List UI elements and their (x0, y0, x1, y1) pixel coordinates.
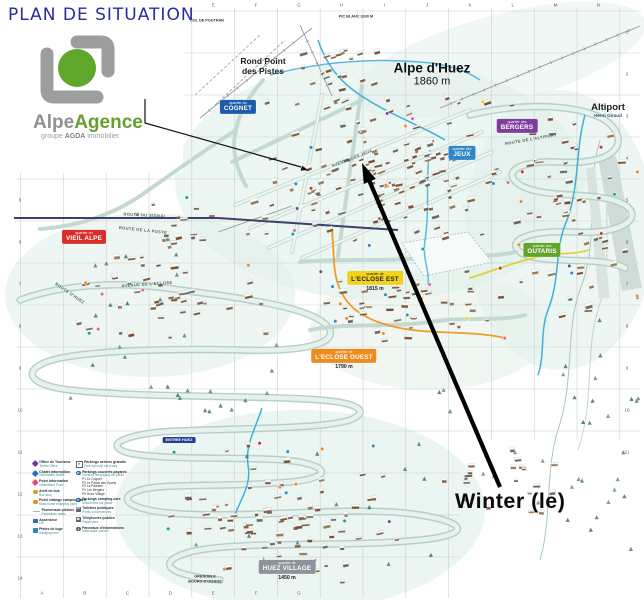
logo-pointer-arrow (145, 99, 308, 171)
page-title: PLAN DE SITUATION (8, 5, 195, 25)
logo-word-alpe: Alpe (33, 112, 74, 133)
plan-de-situation-page: { "page": { "title": "PLAN DE SITUATION"… (0, 0, 644, 600)
alpe-agence-logo: AlpeAgence groupe AGDA immobilier (33, 34, 163, 154)
logo-wordmark: AlpeAgence (33, 112, 173, 134)
logo-tagline: groupe AGDA immobilier (41, 133, 119, 140)
logo-word-agence: Agence (74, 112, 143, 133)
logo-green-circle (58, 49, 96, 87)
alpe-agence-logo-mark (33, 34, 143, 112)
winter-arrow (362, 163, 500, 487)
